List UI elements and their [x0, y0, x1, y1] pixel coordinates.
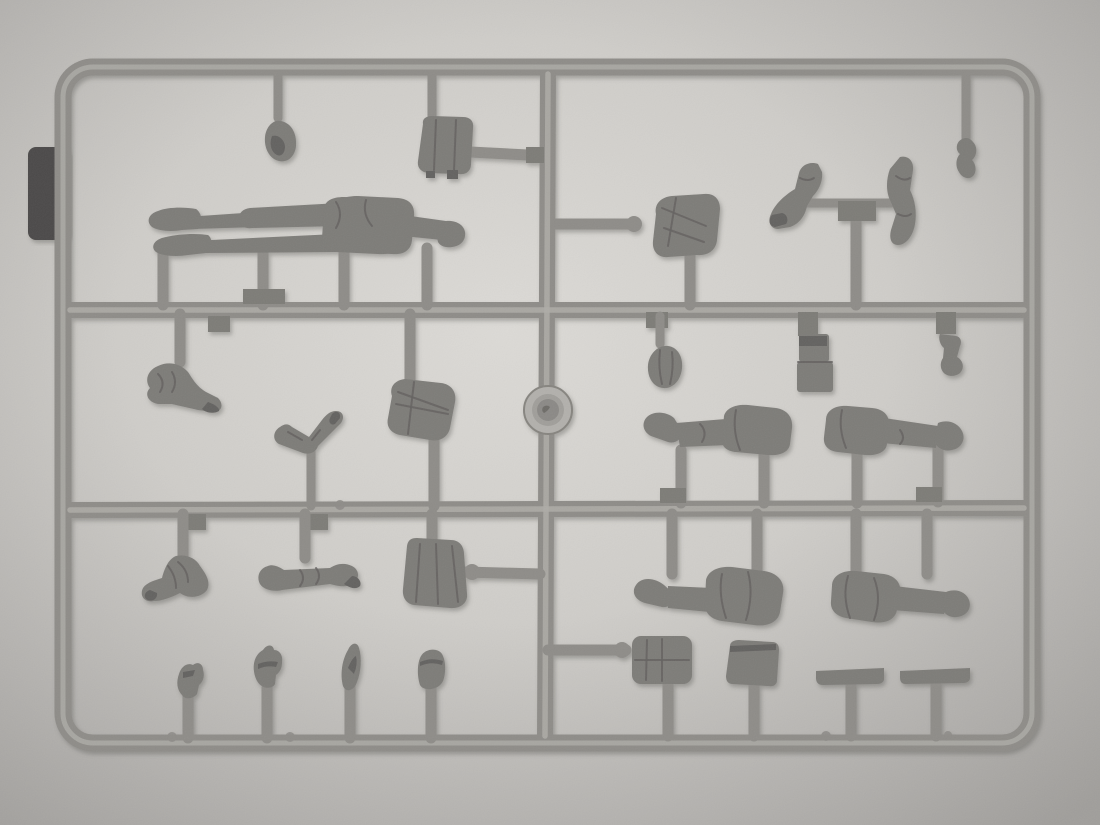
sprue-photo-svg — [0, 0, 1100, 825]
film-grain-overlay — [0, 0, 1100, 825]
photo — [0, 0, 1100, 825]
